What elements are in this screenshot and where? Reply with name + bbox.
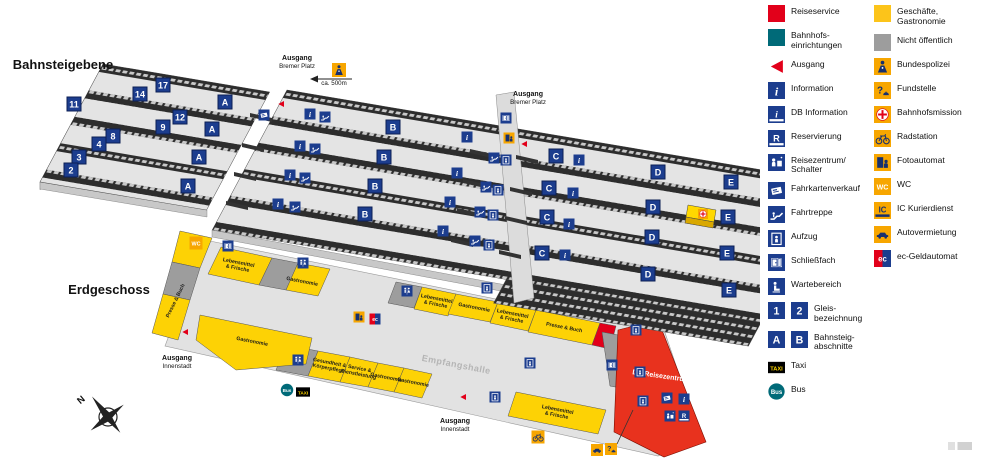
- legend-item: Gleis- bezeichnung: [768, 302, 870, 324]
- legend-label: Information: [791, 82, 834, 94]
- db-reisezentrum-building: [614, 320, 706, 457]
- legend-label: ec-Geldautomat: [897, 250, 957, 262]
- fahrkarten-icon: [768, 182, 785, 199]
- fahrtreppe-icon: [768, 206, 785, 223]
- legend-item: Fahrtreppe: [768, 206, 870, 223]
- sq-teal-icon: [768, 29, 785, 46]
- gA-icon: [768, 331, 785, 348]
- legend-item: Information: [768, 82, 870, 99]
- sq-gray-icon: [874, 34, 891, 51]
- legend-item: IC Kurierdienst: [874, 202, 998, 219]
- g1-icon: [768, 302, 785, 319]
- compass-rose: [75, 384, 136, 446]
- legend-item: Reisezentrum/ Schalter: [768, 154, 870, 176]
- legend-label: Radstation: [897, 130, 938, 142]
- g2-icon: [791, 302, 808, 319]
- legend-item: Autovermietung: [874, 226, 998, 243]
- legend-item: Bahnhofs- einrichtungen: [768, 29, 870, 51]
- legend-label: Bahnhofsmission: [897, 106, 962, 118]
- legend-label: Bus: [791, 383, 806, 395]
- legend-label: Fotoautomat: [897, 154, 945, 166]
- legend-label: IC Kurierdienst: [897, 202, 953, 214]
- aufzug-icon: [768, 230, 785, 247]
- ausgang-icon: [768, 58, 785, 75]
- legend-column-left: ReiseserviceBahnhofs- einrichtungenAusga…: [768, 5, 870, 407]
- legend-label: Bahnsteig- abschnitte: [814, 331, 855, 353]
- bus-icon: [768, 383, 785, 400]
- legend-column-right: Geschäfte, GastronomieNicht öffentlichBu…: [874, 5, 998, 274]
- bundespolizei-icon: [874, 58, 891, 75]
- sq-yellow-icon: [874, 5, 891, 22]
- legend-item: Reservierung: [768, 130, 870, 147]
- legend-item: Ausgang: [768, 58, 870, 75]
- legend-label: Gleis- bezeichnung: [814, 302, 862, 324]
- legend-label: Geschäfte, Gastronomie: [897, 5, 946, 27]
- legend-item: Bahnhofsmission: [874, 106, 998, 123]
- station-floorplan: BahnsteigebeneErdgeschossAusgangBremer P…: [0, 0, 1000, 458]
- legend-label: Reiseservice: [791, 5, 840, 17]
- legend-item: Geschäfte, Gastronomie: [874, 5, 998, 27]
- legend-label: Taxi: [791, 359, 806, 371]
- scale-arrow: [310, 76, 352, 83]
- taxi-icon: [768, 359, 785, 376]
- legend-label: Ausgang: [791, 58, 825, 70]
- legend-item: ec-Geldautomat: [874, 250, 998, 267]
- legend-label: Reservierung: [791, 130, 842, 142]
- sq-red-icon: [768, 5, 785, 22]
- wc-orange-icon: [874, 178, 891, 195]
- legend-item: Aufzug: [768, 230, 870, 247]
- legend-item: Nicht öffentlich: [874, 34, 998, 51]
- legend-item: Fotoautomat: [874, 154, 998, 171]
- legend-label: Bahnhofs- einrichtungen: [791, 29, 842, 51]
- legend-label: Schließfach: [791, 254, 835, 266]
- gB-icon: [791, 331, 808, 348]
- legend-label: Reisezentrum/ Schalter: [791, 154, 846, 176]
- reisezentrum-icon: [768, 154, 785, 171]
- legend-item: WC: [874, 178, 998, 195]
- wartebereich-icon: [768, 278, 785, 295]
- legend-label: WC: [897, 178, 911, 190]
- legend-item: Bus: [768, 383, 870, 400]
- info-icon: [768, 82, 785, 99]
- dbinfo-icon: [768, 106, 785, 123]
- ic-icon: [874, 202, 891, 219]
- legend-label: Fahrkartenverkauf: [791, 182, 860, 194]
- schliessfach-icon: [768, 254, 785, 271]
- legend-item: Bundespolizei: [874, 58, 998, 75]
- legend-label: Autovermietung: [897, 226, 957, 238]
- legend-label: Bundespolizei: [897, 58, 950, 70]
- corner-mark: [948, 442, 972, 450]
- legend-label: Fundstelle: [897, 82, 936, 94]
- legend-item: DB Information: [768, 106, 870, 123]
- legend-item: Fahrkartenverkauf: [768, 182, 870, 199]
- radstation-icon: [874, 130, 891, 147]
- ec-icon: [874, 250, 891, 267]
- autovermietung-icon: [874, 226, 891, 243]
- legend-item: Schließfach: [768, 254, 870, 271]
- reservierung-icon: [768, 130, 785, 147]
- bahnhofsmission-icon: [874, 106, 891, 123]
- legend-item: Taxi: [768, 359, 870, 376]
- legend-item: Bahnsteig- abschnitte: [768, 331, 870, 353]
- legend-item: Reiseservice: [768, 5, 870, 22]
- legend-label: Aufzug: [791, 230, 817, 242]
- legend-item: Wartebereich: [768, 278, 870, 295]
- legend-label: Fahrtreppe: [791, 206, 833, 218]
- legend-label: Wartebereich: [791, 278, 841, 290]
- legend-item: Radstation: [874, 130, 998, 147]
- legend-item: Fundstelle: [874, 82, 998, 99]
- fundstelle-icon: [874, 82, 891, 99]
- fotoautomat-icon: [874, 154, 891, 171]
- legend-label: Nicht öffentlich: [897, 34, 953, 46]
- legend-label: DB Information: [791, 106, 848, 118]
